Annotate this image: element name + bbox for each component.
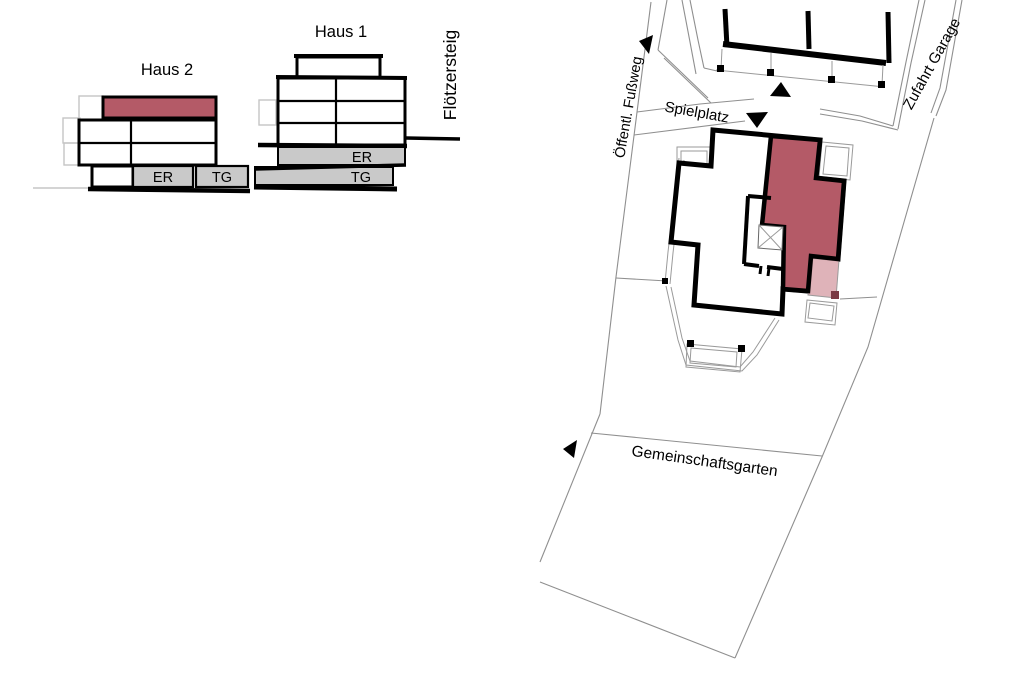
balcony-column — [767, 69, 774, 76]
entrance-arrow-down-icon — [746, 112, 768, 128]
haus2-title: Haus 2 — [141, 61, 193, 79]
balcony-column — [662, 278, 668, 284]
parcel-boundary-bottom — [540, 582, 735, 658]
haus1-tg-label: TG — [351, 170, 371, 186]
site-plan: Spielplatz Öffentl. Fußweg Zufahrt Garag… — [540, 0, 964, 658]
garden-arrow-icon — [563, 440, 577, 458]
haus2-highlighted-floor[interactable] — [103, 97, 216, 118]
street-level-line — [406, 138, 460, 139]
building-sections: Haus 2 ER TG Haus 1 — [33, 23, 460, 191]
label-gemeinschaftsgarten: Gemeinschaftsgarten — [630, 443, 778, 480]
site-building-upper — [716, 9, 889, 88]
haus1-roof-line — [276, 77, 407, 78]
parcel-boundary-left — [540, 414, 600, 562]
backdrop-outline — [79, 96, 103, 120]
haus1-er-level — [278, 147, 405, 165]
site-building-main — [671, 130, 844, 314]
section-haus1: Haus 1 ER TG — [254, 23, 460, 189]
tg-bottom-line — [254, 187, 397, 189]
balcony-column — [738, 345, 745, 352]
label-zufahrt-garage: Zufahrt Garage — [900, 15, 964, 112]
backdrop-outline — [259, 100, 276, 125]
entrance-arrow-up-icon — [770, 82, 791, 97]
haus1-er-label: ER — [352, 150, 372, 166]
floorplan-locator-page: Haus 2 ER TG Haus 1 — [0, 0, 1023, 680]
haus1-body — [278, 78, 405, 145]
balcony-column — [878, 81, 885, 88]
haus2-ground-room — [92, 166, 133, 187]
haus2-er-label: ER — [153, 170, 173, 186]
street-label-flotzersteig: Flötzersteig — [440, 30, 460, 120]
label-oeffentl-fussweg: Öffentl. Fußweg — [610, 55, 646, 159]
site-and-section-diagram: Haus 2 ER TG Haus 1 — [0, 0, 1023, 680]
backdrop-outline — [63, 118, 80, 143]
ground-line — [88, 189, 250, 191]
label-spielplatz: Spielplatz — [663, 99, 730, 127]
section-haus2: Haus 2 ER TG — [33, 61, 250, 191]
site-context-lines — [540, 0, 962, 658]
balcony-column — [717, 65, 724, 72]
ground-line — [258, 145, 407, 146]
haus1-title: Haus 1 — [315, 23, 367, 41]
haus2-tg-label: TG — [212, 170, 232, 186]
haus1-penthouse — [297, 57, 380, 78]
balcony-column — [828, 76, 835, 83]
terrace-corner-marker — [831, 291, 839, 299]
balcony-column — [687, 340, 694, 347]
